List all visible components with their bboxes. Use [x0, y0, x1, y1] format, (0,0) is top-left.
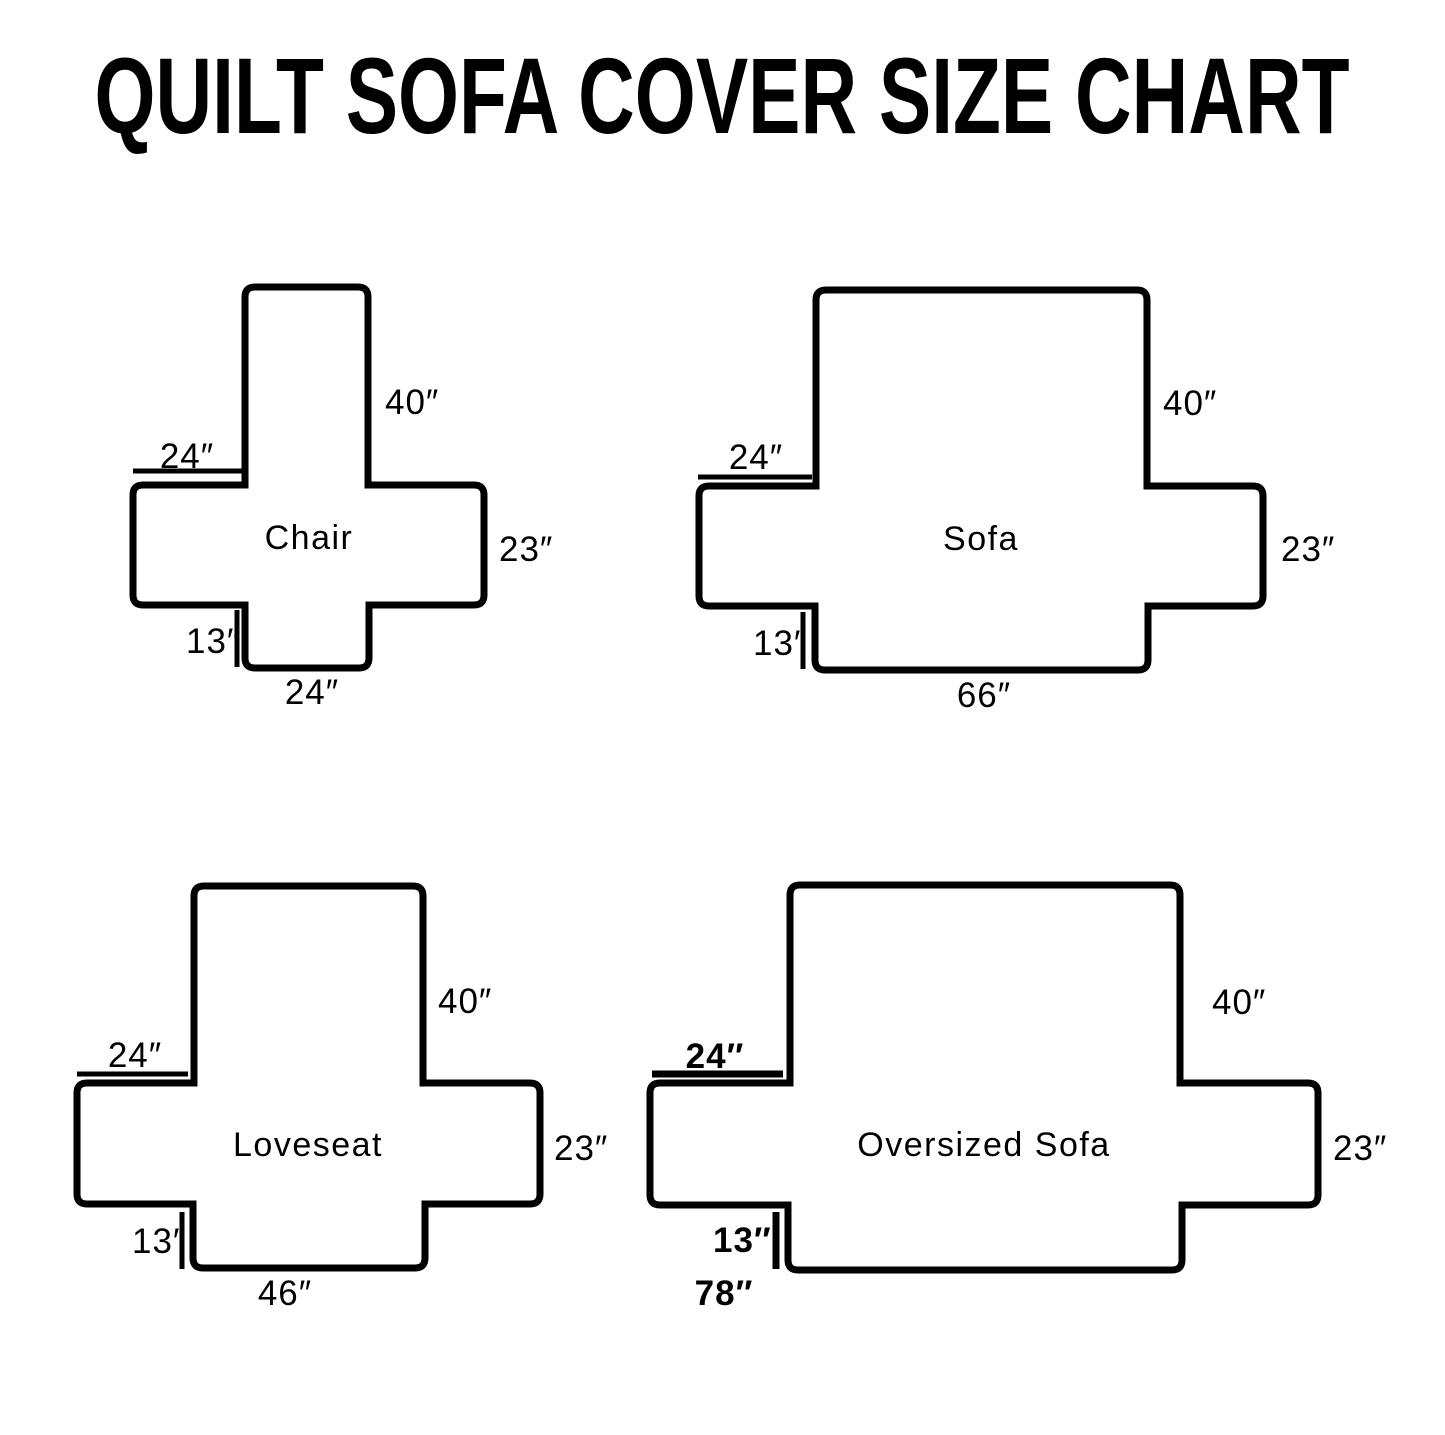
oversized-sofa-back-height-label: 40″ [1212, 983, 1266, 1022]
sofa-bottom-width-label: 66″ [957, 676, 1011, 715]
chair-diagram: 40″ 24″ Chair 23″ 13″ 24″ [133, 287, 553, 712]
oversized-sofa-seat-side-label: 23″ [1333, 1129, 1387, 1168]
oversized-sofa-front-drop-label: 13″ [713, 1221, 772, 1260]
oversized-sofa-bottom-width-label: 78″ [695, 1274, 754, 1313]
loveseat-front-drop-label: 13″ [132, 1222, 186, 1261]
chair-front-drop-label: 13″ [186, 622, 240, 661]
sofa-cover-outline [699, 290, 1263, 670]
chair-arm-width-label: 24″ [160, 437, 214, 476]
loveseat-cover-outline [77, 886, 540, 1268]
page-title: QUILT SOFA COVER SIZE CHART [95, 35, 1350, 156]
sofa-seat-side-label: 23″ [1281, 530, 1335, 569]
chair-bottom-width-label: 24″ [285, 673, 339, 712]
sofa-label: Sofa [943, 520, 1019, 558]
loveseat-back-height-label: 40″ [438, 982, 492, 1021]
loveseat-diagram: 40″ 24″ Loveseat 23″ 13″ 46″ [77, 886, 608, 1313]
sofa-arm-width-label: 24″ [729, 438, 783, 477]
loveseat-seat-side-label: 23″ [554, 1129, 608, 1168]
oversized-sofa-label: Oversized Sofa [857, 1126, 1110, 1164]
chair-cover-outline [133, 287, 484, 668]
sofa-front-drop-label: 13″ [753, 624, 807, 663]
loveseat-arm-width-label: 24″ [108, 1036, 162, 1075]
size-chart-page: QUILT SOFA COVER SIZE CHART 40″ 24″ Chai… [0, 0, 1445, 1435]
oversized-sofa-arm-width-label: 24″ [686, 1037, 745, 1076]
chair-seat-side-label: 23″ [499, 530, 553, 569]
loveseat-bottom-width-label: 46″ [258, 1274, 312, 1313]
size-chart-canvas: QUILT SOFA COVER SIZE CHART 40″ 24″ Chai… [0, 0, 1445, 1435]
chair-back-height-label: 40″ [385, 383, 439, 422]
loveseat-label: Loveseat [233, 1126, 383, 1164]
sofa-diagram: 40″ 24″ Sofa 23″ 13″ 66″ [698, 290, 1335, 715]
chair-label: Chair [265, 519, 354, 557]
sofa-back-height-label: 40″ [1163, 384, 1217, 423]
oversized-sofa-diagram: 40″ 24″ Oversized Sofa 23″ 13″ 78″ [650, 885, 1387, 1313]
